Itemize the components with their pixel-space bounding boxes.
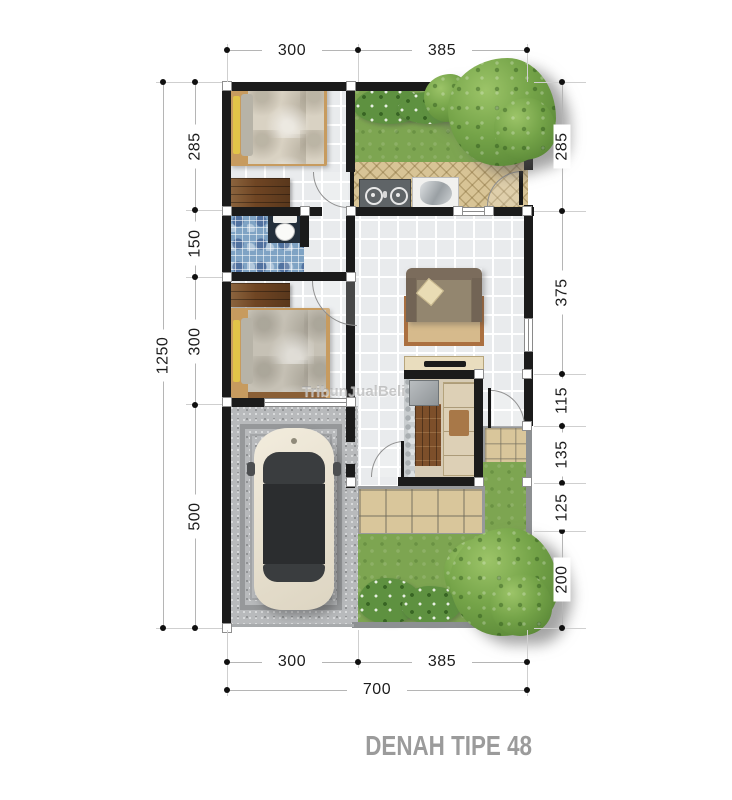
front-garden-tree <box>444 528 560 644</box>
tv <box>424 361 466 367</box>
wall-hall <box>346 207 355 281</box>
column-marker <box>522 206 532 216</box>
dim-top-385: 385 <box>412 42 472 59</box>
wall-left <box>222 82 231 628</box>
dim-dot <box>192 79 198 85</box>
bed-2-pillow-yellow <box>233 320 240 382</box>
wall-right-b <box>524 205 533 318</box>
column-marker <box>222 206 232 216</box>
utility-door-leaf <box>401 441 404 477</box>
column-marker <box>474 477 484 487</box>
wall-utility-top <box>404 370 483 379</box>
dim-dot <box>160 625 166 631</box>
dim-left-1250: 1250 <box>155 330 172 382</box>
column-marker <box>474 369 484 379</box>
dim-dot <box>559 423 565 429</box>
column-marker <box>484 206 494 216</box>
dim-right-115: 115 <box>554 379 571 423</box>
column-marker <box>300 206 310 216</box>
bedroom1-door-leaf <box>350 172 354 207</box>
bed-1-pillow-yellow <box>233 96 240 154</box>
plan-title: DENAH TIPE 48 <box>354 730 532 762</box>
dim-dot <box>559 625 565 631</box>
side-garden-strip <box>483 462 532 538</box>
column-marker <box>522 369 532 379</box>
column-marker <box>222 272 232 282</box>
bed-2-blanket <box>248 310 326 394</box>
car-mirror-left <box>247 462 255 476</box>
dim-dot <box>559 79 565 85</box>
bed-2-pillow <box>241 318 253 384</box>
stove-burner <box>365 187 383 205</box>
wall-kitchen-living <box>346 207 462 216</box>
wall-utility-right <box>474 370 483 486</box>
wall-right-c <box>524 352 533 426</box>
stove-knob <box>383 191 387 198</box>
column-marker <box>453 206 463 216</box>
dim-right-200: 200 <box>554 558 571 602</box>
dim-dot <box>192 625 198 631</box>
bed-1-pillow <box>241 94 253 156</box>
car <box>254 428 334 610</box>
sink-basin <box>420 181 452 205</box>
column-marker <box>222 397 232 407</box>
car-roof-glass <box>263 484 325 564</box>
dim-right-135: 135 <box>554 433 571 477</box>
dim-left-500: 500 <box>187 495 204 539</box>
dim-bottom-300: 300 <box>262 653 322 670</box>
dim-dot <box>192 207 198 213</box>
sofa <box>406 268 482 322</box>
floor-plan-canvas: 300 385 300 385 700 285 150 300 500 1250… <box>0 0 732 800</box>
sofa-arm-left <box>406 278 416 322</box>
dim-dot <box>224 687 230 693</box>
sofa-arm-right <box>472 278 482 322</box>
side-door-leaf <box>488 388 491 428</box>
dim-dot <box>224 659 230 665</box>
stove-burner <box>390 187 408 205</box>
dim-dot <box>355 659 361 665</box>
dim-dot <box>192 274 198 280</box>
wardrobe-bedroom-1 <box>228 178 290 208</box>
dim-dot <box>524 687 530 693</box>
dim-dot <box>224 47 230 53</box>
shelf-item <box>449 410 469 436</box>
dim-top-300: 300 <box>262 42 322 59</box>
wall-bathroom-bottom <box>222 272 355 281</box>
wall-utility-bottom <box>398 477 483 486</box>
wall-bathroom-right <box>300 213 309 247</box>
column-marker <box>346 477 356 487</box>
column-marker <box>346 272 356 282</box>
back-garden-tree <box>424 58 560 184</box>
dim-dot <box>192 402 198 408</box>
toilet-tank <box>273 215 297 223</box>
toilet <box>268 213 302 243</box>
dim-left-285: 285 <box>187 125 204 169</box>
car-logo <box>291 438 297 444</box>
dim-bottom-385: 385 <box>412 653 472 670</box>
column-marker <box>222 81 232 91</box>
column-marker <box>346 206 356 216</box>
column-marker <box>522 421 532 431</box>
dim-dot <box>355 47 361 53</box>
dim-right-285: 285 <box>554 125 571 169</box>
dim-right-125: 125 <box>554 486 571 530</box>
side-terrace <box>483 426 528 464</box>
car-rear-window <box>263 564 325 582</box>
tree-crown <box>490 574 552 636</box>
toilet-bowl <box>275 223 295 241</box>
dim-right-375: 375 <box>554 271 571 315</box>
bed-1-blanket <box>248 86 324 164</box>
wall-hall-lower-a <box>346 406 355 442</box>
wall-bedroom1-right <box>346 82 355 172</box>
dim-left-300: 300 <box>187 320 204 364</box>
car-mirror-right <box>333 462 341 476</box>
wardrobe-bedroom-2 <box>228 283 290 307</box>
tree-crown <box>494 98 556 160</box>
living-window <box>524 318 533 352</box>
dim-dot <box>559 208 565 214</box>
dim-dot <box>524 47 530 53</box>
bed-1 <box>230 84 327 166</box>
column-marker <box>346 81 356 91</box>
dim-left-150: 150 <box>187 222 204 266</box>
carport-entry-edge <box>224 624 354 627</box>
column-marker <box>522 477 532 487</box>
utility-wood-deck <box>415 404 441 466</box>
watermark: TribunJualBeli <box>302 383 452 400</box>
dim-bottom-700: 700 <box>347 681 407 698</box>
car-windshield <box>263 452 325 484</box>
dim-dot <box>559 371 565 377</box>
stove-counter <box>359 179 411 208</box>
dim-dot <box>524 659 530 665</box>
dim-dot <box>160 79 166 85</box>
